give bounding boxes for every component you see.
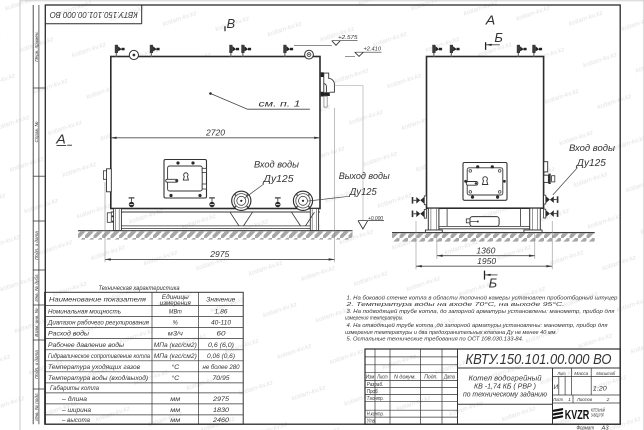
svg-text:– ширина: – ширина (61, 407, 92, 414)
svg-text:м3/ч: м3/ч (168, 331, 184, 338)
svg-text:KVZR: KVZR (565, 407, 590, 422)
svg-text:Лист: Лист (552, 397, 563, 403)
svg-text:4. На отводящей трубе котла ,: 4. На отводящей трубе котла ,до запорной… (347, 322, 608, 329)
svg-text:Проб.: Проб. (367, 389, 379, 395)
svg-text:°С: °С (171, 375, 180, 382)
svg-text:2975: 2975 (212, 396, 230, 403)
svg-text:Б: Б (489, 275, 498, 290)
svg-text:КВТУ.150.101.00.000 ВО: КВТУ.150.101.00.000 ВО (466, 352, 612, 368)
svg-text:0,06 (0,6): 0,06 (0,6) (207, 353, 235, 360)
svg-text:Т.контр.: Т.контр. (367, 396, 384, 402)
svg-text:+0.000: +0.000 (368, 216, 384, 222)
svg-text:Утв.: Утв. (367, 419, 376, 425)
svg-text:Ду125: Ду125 (349, 187, 377, 198)
svg-text:Масса: Масса (574, 371, 588, 377)
svg-text:КВ -1,74 КБ ( РВР ): КВ -1,74 КБ ( РВР ) (474, 383, 536, 390)
svg-text:Б: Б (494, 30, 503, 45)
svg-text:Температура воды (вход/выход): Температура воды (вход/выход) (48, 375, 148, 382)
svg-text:1360: 1360 (476, 247, 496, 256)
svg-text:40-110: 40-110 (211, 320, 232, 327)
svg-text:Значение: Значение (206, 297, 236, 304)
svg-text:0,6 (6,0): 0,6 (6,0) (208, 342, 234, 349)
svg-text:5. Остальные технические треб: 5. Остальные технические требования по О… (347, 337, 524, 343)
svg-text:Выход воды: Выход воды (339, 171, 390, 181)
svg-text:измерения температуры.: измерения температуры. (345, 316, 404, 322)
svg-text:Справ. №: Справ. № (34, 122, 39, 143)
svg-text:N докум.: N докум. (394, 375, 416, 381)
svg-text:по техническому заданию: по техническому заданию (463, 391, 548, 399)
svg-text:1:20: 1:20 (593, 385, 607, 392)
svg-text:Инв. № дубл.: Инв. № дубл. (34, 273, 39, 301)
svg-text:1950: 1950 (477, 257, 497, 266)
svg-text:измерения: измерения (160, 300, 192, 307)
svg-text:2: 2 (606, 397, 610, 403)
svg-text:– высота: – высота (61, 417, 91, 424)
svg-text:1830: 1830 (213, 407, 230, 414)
svg-text:Взам. инв. №: Взам. инв. № (34, 308, 39, 336)
svg-text:Гидравлическое сопротивление к: Гидравлическое сопротивление котла (48, 353, 150, 360)
svg-text:Наименование показателя: Наименование показателя (49, 297, 147, 304)
svg-text:см. п. 1: см. п. 1 (259, 99, 301, 109)
svg-text:Перв. примен.: Перв. примен. (34, 31, 39, 62)
svg-text:Техническая характеристика: Техническая характеристика (99, 285, 180, 292)
svg-text:+2.575: +2.575 (338, 35, 358, 41)
svg-text:2720: 2720 (205, 128, 226, 137)
svg-text:3. На подводящей трубе котла,: 3. На подводящей трубе котла, до запорно… (347, 308, 615, 315)
svg-text:2. Температура воды на входе: 2. Температура воды на входе 70°С, на вы… (345, 302, 564, 308)
svg-text:70/95: 70/95 (213, 375, 231, 382)
svg-text:Габариты котла: Габариты котла (50, 385, 100, 392)
svg-text:Лист: Лист (376, 375, 387, 381)
svg-text:Изм: Изм (366, 375, 375, 381)
svg-text:МВт: МВт (169, 309, 182, 316)
svg-text:1. На боковой стенке котла в: 1. На боковой стенке котла в области топ… (347, 294, 619, 301)
svg-text:И: И (553, 384, 558, 391)
svg-text:Расход воды: Расход воды (48, 331, 89, 338)
svg-text:Подп.: Подп. (424, 375, 438, 381)
svg-text:Подп. и дата: Подп. и дата (34, 350, 39, 379)
svg-text:Ду125: Ду125 (576, 158, 606, 169)
svg-text:мм: мм (170, 417, 181, 424)
svg-text:Номинальная мощность: Номинальная мощность (48, 309, 121, 316)
svg-text:°С: °С (171, 364, 180, 371)
svg-text:МПа (кгс/см2): МПа (кгс/см2) (154, 342, 197, 349)
svg-text:Разраб.: Разраб. (367, 382, 384, 388)
svg-text:не более 280: не более 280 (203, 364, 241, 371)
svg-text:Температура уходящих газов: Температура уходящих газов (48, 364, 141, 371)
svg-text:Н.контр.: Н.контр. (367, 412, 384, 418)
svg-text:ЗАВОД РЭП: ЗАВОД РЭП (591, 413, 604, 418)
svg-text:А3: А3 (600, 426, 609, 430)
svg-text:Ду125: Ду125 (262, 174, 293, 185)
svg-text:Листов: Листов (576, 397, 592, 403)
svg-text:2975: 2975 (209, 250, 230, 259)
svg-text:Лит.: Лит. (557, 371, 567, 377)
svg-text:Масштаб: Масштаб (596, 371, 615, 377)
svg-text:Формат: Формат (577, 426, 595, 430)
svg-text:1: 1 (568, 397, 571, 403)
svg-text:– длина: – длина (61, 396, 88, 403)
svg-text:Диапазон рабочего регулировани: Диапазон рабочего регулирования (47, 320, 150, 327)
svg-text:мм: мм (170, 396, 181, 403)
svg-text:Котел водогрейный: Котел водогрейный (469, 375, 542, 383)
svg-text:%: % (173, 320, 178, 327)
svg-text:А: А (485, 13, 496, 28)
svg-text:Вход воды: Вход воды (569, 143, 615, 153)
svg-text:КВТУ.150.101.00.000 ВО: КВТУ.150.101.00.000 ВО (50, 10, 138, 19)
svg-text:+2.410: +2.410 (364, 47, 382, 53)
svg-text:Подп. и дата: Подп. и дата (34, 231, 39, 260)
svg-text:мм: мм (170, 407, 181, 414)
svg-text:В: В (227, 16, 236, 31)
svg-text:Дата: Дата (443, 375, 455, 381)
svg-text:Инв. № подл.: Инв. № подл. (34, 392, 39, 421)
svg-text:Вход воды: Вход воды (254, 160, 299, 170)
svg-text:Рабочее давление воды: Рабочее давление воды (48, 342, 124, 349)
svg-text:60: 60 (217, 331, 227, 338)
svg-text:измерения температуры и два пр: измерения температуры и два предохраните… (345, 330, 557, 336)
svg-text:А: А (55, 132, 66, 147)
svg-text:2460: 2460 (212, 417, 230, 424)
svg-text:1,86: 1,86 (215, 309, 229, 316)
svg-text:МПа (кгс/см2): МПа (кгс/см2) (154, 353, 197, 360)
